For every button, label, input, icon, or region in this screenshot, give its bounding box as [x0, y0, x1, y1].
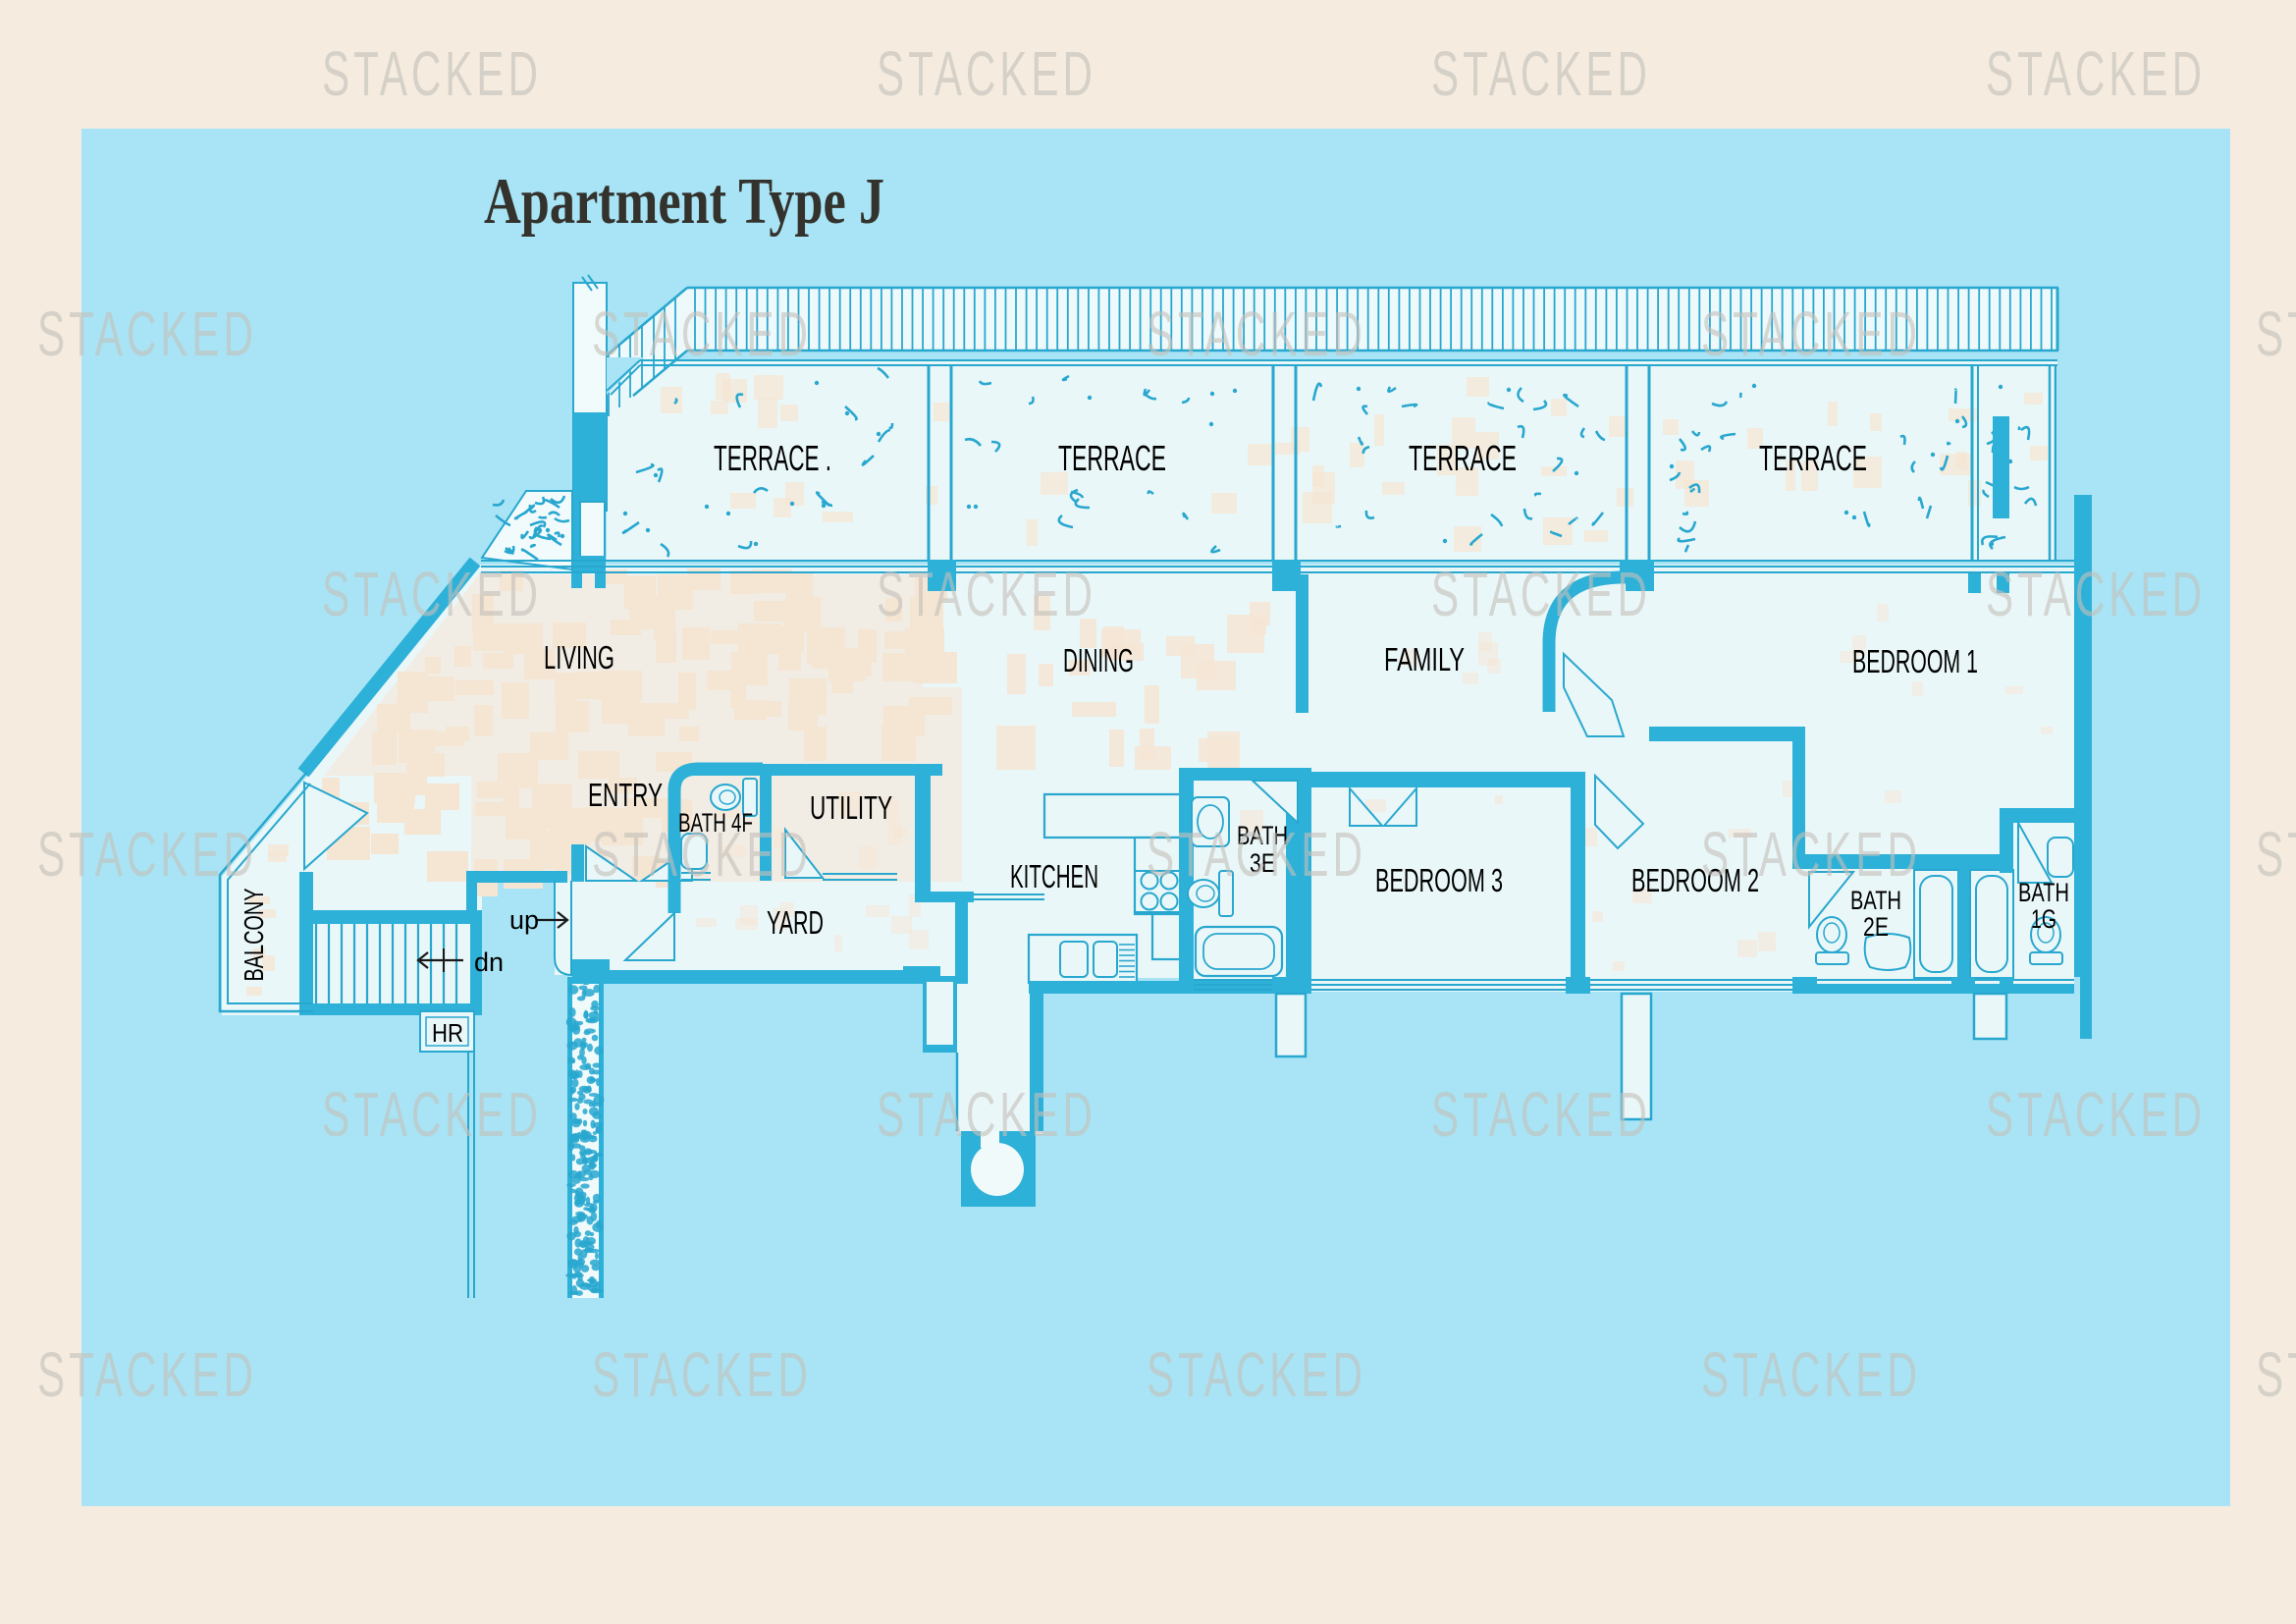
svg-text:DINING: DINING — [1063, 642, 1134, 678]
svg-text:STACKED: STACKED — [2256, 1339, 2296, 1410]
svg-text:BALCONY: BALCONY — [239, 888, 269, 981]
svg-text:TERRACE: TERRACE — [1759, 438, 1867, 478]
svg-text:STACKED: STACKED — [1431, 559, 1651, 629]
svg-text:STACKED: STACKED — [37, 1339, 257, 1410]
svg-text:STACKED: STACKED — [322, 1079, 542, 1150]
svg-text:STACKED: STACKED — [1986, 38, 2206, 109]
svg-text:FAMILY: FAMILY — [1384, 641, 1465, 677]
svg-text:STACKED: STACKED — [1431, 1079, 1651, 1150]
svg-text:STACKED: STACKED — [37, 298, 257, 369]
svg-text:UTILITY: UTILITY — [810, 789, 892, 826]
svg-text:KITCHEN: KITCHEN — [1010, 858, 1098, 894]
svg-text:STACKED: STACKED — [2256, 298, 2296, 369]
svg-text:BATH: BATH — [2018, 878, 2069, 907]
svg-text:STACKED: STACKED — [1701, 1339, 1921, 1410]
svg-text:HR: HR — [432, 1018, 463, 1048]
svg-text:Apartment Type J: Apartment Type J — [484, 165, 884, 238]
svg-text:STACKED: STACKED — [592, 1339, 812, 1410]
svg-text:STACKED: STACKED — [1431, 38, 1651, 109]
svg-text:STACKED: STACKED — [322, 559, 542, 629]
svg-text:STACKED: STACKED — [1986, 1079, 2206, 1150]
svg-text:ENTRY: ENTRY — [588, 777, 663, 813]
svg-text:STACKED: STACKED — [877, 1079, 1096, 1150]
svg-text:BEDROOM 1: BEDROOM 1 — [1852, 643, 1978, 679]
svg-text:STACKED: STACKED — [1986, 559, 2206, 629]
svg-text:TERRACE .: TERRACE . — [714, 438, 831, 478]
svg-text:STACKED: STACKED — [877, 38, 1096, 109]
svg-text:STACKED: STACKED — [2256, 819, 2296, 890]
svg-text:STACKED: STACKED — [322, 38, 542, 109]
svg-text:STACKED: STACKED — [1147, 298, 1366, 369]
svg-text:STACKED: STACKED — [877, 559, 1096, 629]
svg-text:up: up — [509, 905, 539, 935]
svg-text:dn: dn — [474, 947, 504, 977]
svg-text:LIVING: LIVING — [544, 639, 614, 676]
svg-text:STACKED: STACKED — [592, 298, 812, 369]
svg-text:YARD: YARD — [767, 904, 824, 941]
svg-text:STACKED: STACKED — [37, 819, 257, 890]
svg-text:TERRACE: TERRACE — [1058, 438, 1166, 478]
svg-text:STACKED: STACKED — [1147, 819, 1366, 890]
svg-text:2E: 2E — [1863, 912, 1889, 942]
svg-text:1G: 1G — [2031, 904, 2056, 934]
svg-text:STACKED: STACKED — [592, 819, 812, 890]
svg-text:BATH: BATH — [1850, 886, 1901, 915]
svg-text:TERRACE: TERRACE — [1409, 438, 1517, 478]
svg-text:BEDROOM 3: BEDROOM 3 — [1375, 862, 1503, 898]
svg-text:STACKED: STACKED — [1701, 298, 1921, 369]
svg-text:STACKED: STACKED — [1701, 819, 1921, 890]
svg-text:STACKED: STACKED — [1147, 1339, 1366, 1410]
